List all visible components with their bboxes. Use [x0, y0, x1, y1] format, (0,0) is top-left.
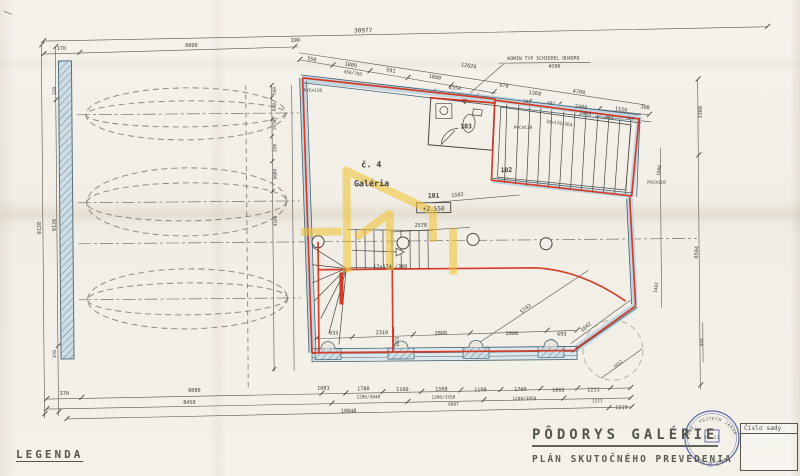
dim-label: 978	[499, 83, 509, 90]
sink	[436, 104, 452, 119]
dim-label: 1880	[428, 74, 441, 82]
dim-label: 1809	[344, 61, 357, 69]
toilet-tank	[473, 109, 483, 116]
dim-label: 507	[626, 116, 635, 123]
pvc-note: PVC∅110	[303, 88, 322, 94]
dim-label: 1219	[615, 405, 628, 411]
dim-label: 1083	[317, 386, 330, 392]
unit-number-label: č. 4	[361, 159, 381, 169]
scanned-floor-plan: 30977 370 8000 390 550 1809 450/750 591 …	[0, 0, 800, 476]
dim-label: 2808	[435, 331, 448, 337]
column	[467, 233, 479, 245]
column	[540, 238, 552, 250]
dim-label: 1508	[435, 387, 448, 393]
dim-label: 2578	[415, 223, 428, 229]
dim-label: 308	[640, 104, 650, 111]
dim-label: 30977	[354, 27, 373, 34]
dim-label: 193	[523, 98, 532, 105]
axis-centerlines	[77, 109, 698, 299]
chimney-size-note: #200	[549, 64, 561, 70]
dim-label: 1780	[357, 386, 370, 392]
dim-label: 1200/3850	[512, 396, 536, 402]
dim-label: 3309	[698, 106, 705, 119]
title-block: PÔDORYS GALÉRIE PLÁN SKUTOČNÉHO PREVEDEN…	[532, 424, 733, 465]
dim-label: 1211	[587, 387, 600, 393]
series-number-box: Číslo sady	[740, 423, 798, 471]
dim-label: 2318	[376, 330, 389, 336]
dim-label: 1075	[395, 336, 401, 347]
column	[397, 237, 409, 249]
room-level-101: +2.550	[423, 206, 445, 213]
stairs-and-fixtures	[311, 96, 633, 345]
window-sill-band	[312, 346, 577, 361]
dim-label: 370	[60, 391, 69, 397]
dim-label: 390	[291, 38, 300, 44]
room-label-103: 103	[460, 122, 472, 130]
stair-direction-arrow	[352, 250, 402, 252]
dim-label: 591	[386, 67, 396, 74]
chimney-note: KOMÍN TYP SCHIEDEL QUADRO	[507, 53, 579, 62]
dim-label: 693	[557, 332, 566, 338]
roof-projection-dashes	[86, 82, 644, 393]
dim-label: 250	[272, 144, 278, 152]
dim-label: 560	[272, 87, 278, 95]
stair-dim-note: 32×178/264	[546, 119, 573, 128]
door-swing	[441, 128, 458, 144]
dim-label: 320	[52, 87, 58, 95]
legend-label: LEGENDA	[16, 448, 83, 461]
dim-label: 10848	[341, 408, 357, 414]
dimension-ticks	[39, 24, 773, 421]
dim-label: 1100	[396, 387, 409, 393]
dim-label: 1700	[514, 387, 527, 393]
dim-label: 8987	[448, 401, 459, 407]
dim-label: 1198	[474, 387, 487, 393]
dim-label: 497	[547, 100, 556, 107]
series-box-label: Číslo sady	[741, 424, 797, 434]
dim-label: 1042	[579, 321, 593, 333]
dim-label: 9128	[37, 222, 43, 235]
dim-label: 1002	[552, 388, 565, 394]
dim-label: 8450	[183, 400, 196, 406]
dim-label: 1211	[592, 398, 603, 404]
dim-label: 1012	[613, 358, 625, 370]
pvc-note: PVC∅110	[647, 180, 666, 186]
dim-label: 2808	[506, 331, 519, 337]
dim-label: 1200/3840	[356, 394, 380, 400]
drawing-subtitle: PLÁN SKUTOČNÉHO PREVEDENIA	[532, 454, 733, 465]
dim-label: 12626	[460, 62, 476, 70]
pvc-note: PVC∅110	[514, 125, 533, 131]
red-curved-wall	[318, 267, 625, 304]
dim-label: 443	[699, 338, 705, 346]
dim-label: 1600	[656, 165, 664, 177]
dim-label: 840	[272, 103, 278, 111]
stair-dim-note: 17×174 /300	[373, 264, 407, 270]
existing-wall	[58, 61, 74, 359]
drawing-title: PÔDORYS GALÉRIE	[532, 427, 718, 447]
dim-label: 935	[329, 331, 338, 337]
unit-name-label: Galéria	[354, 178, 389, 188]
dim-label: 1482	[653, 282, 661, 294]
dim-label: 6504	[694, 246, 701, 259]
room-label-102: 102	[501, 166, 513, 174]
sink-bowl	[440, 107, 448, 115]
dim-label: 8080	[188, 388, 201, 394]
dim-label: 1970	[272, 119, 278, 130]
dim-label: 5742	[519, 303, 533, 315]
dim-label: 370	[57, 46, 66, 52]
dim-label: 1268	[528, 90, 541, 98]
dim-label: 433	[605, 115, 614, 122]
dim-label: 1582	[451, 192, 464, 199]
dim-label: 4328	[273, 215, 279, 226]
dim-label: 4700	[572, 89, 585, 97]
floor-plan-drawing: 30977 370 8000 390 550 1809 450/750 591 …	[0, 0, 800, 476]
dim-label: 2405	[578, 111, 591, 119]
dim-label: 5009	[272, 168, 278, 179]
dim-label: 1200/3550	[431, 395, 455, 401]
dim-label: 550	[306, 56, 316, 63]
dim-label: 370	[52, 350, 58, 358]
dim-label: 8000	[185, 43, 198, 49]
dim-label: 9126	[52, 219, 58, 232]
room-label-101: 101	[428, 192, 440, 200]
